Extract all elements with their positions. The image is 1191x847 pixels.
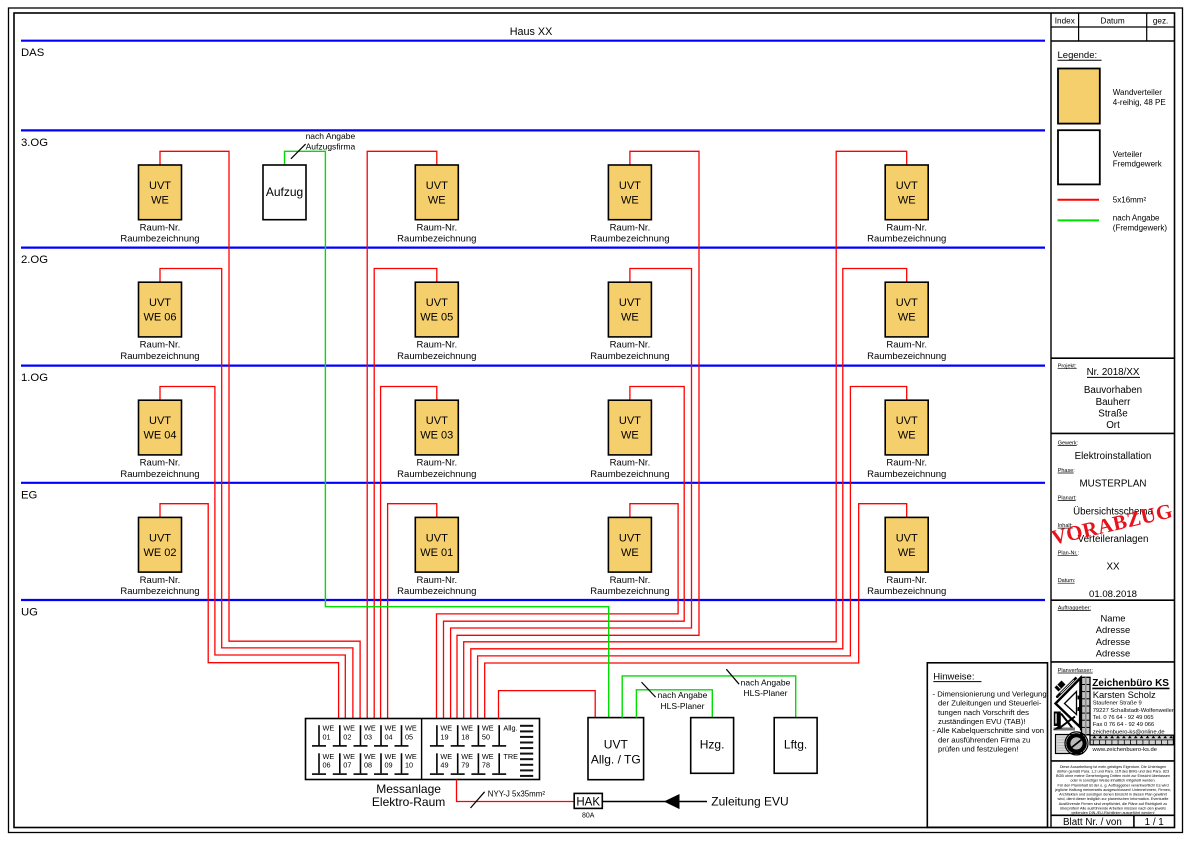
svg-text:UVT: UVT [149, 415, 171, 427]
svg-text:WE: WE [621, 312, 639, 324]
svg-text:Hinweise:: Hinweise: [933, 671, 974, 682]
svg-text:Messanlage: Messanlage [376, 782, 441, 796]
svg-text:Verteiler: Verteiler [1113, 150, 1143, 159]
svg-text:Tel. 0 76 64 - 92 49 065: Tel. 0 76 64 - 92 49 065 [1093, 715, 1154, 721]
svg-text:Adresse: Adresse [1096, 636, 1130, 647]
svg-text:Raum-Nr.: Raum-Nr. [886, 340, 927, 351]
svg-text:79: 79 [461, 761, 469, 770]
svg-text:09: 09 [385, 761, 393, 770]
svg-text:Raumbezeichnung: Raumbezeichnung [397, 351, 476, 362]
svg-text:05: 05 [405, 732, 413, 741]
svg-text:WE 02: WE 02 [143, 547, 176, 559]
svg-text:HLS-Planer: HLS-Planer [744, 688, 788, 698]
svg-text:WE: WE [343, 724, 355, 733]
svg-text:Elektroinstallation: Elektroinstallation [1075, 451, 1152, 462]
svg-text:WE: WE [440, 752, 452, 761]
svg-text:WE 04: WE 04 [143, 430, 176, 442]
svg-text:UVT: UVT [149, 532, 171, 544]
svg-text:Raumbezeichnung: Raumbezeichnung [867, 234, 946, 245]
svg-text:Name: Name [1100, 613, 1125, 624]
svg-text:Raumbezeichnung: Raumbezeichnung [397, 586, 476, 597]
svg-text:3.OG: 3.OG [21, 137, 48, 149]
svg-text:Raum-Nr.: Raum-Nr. [610, 340, 651, 351]
svg-text:Raumbezeichnung: Raumbezeichnung [120, 469, 199, 480]
svg-text:(Fremdgewerk): (Fremdgewerk) [1113, 223, 1168, 232]
svg-text:WE: WE [385, 752, 397, 761]
svg-text:Raum-Nr.: Raum-Nr. [886, 458, 927, 469]
svg-text:der Zuleitungen und Steuerlei-: der Zuleitungen und Steuerlei- [938, 699, 1042, 708]
svg-text:Raumbezeichnung: Raumbezeichnung [867, 469, 946, 480]
svg-text:Raum-Nr.: Raum-Nr. [416, 575, 457, 586]
svg-text:WE: WE [621, 547, 639, 559]
svg-text:MUSTERPLAN: MUSTERPLAN [1080, 479, 1147, 490]
svg-text:06: 06 [323, 761, 331, 770]
svg-text:Raumbezeichnung: Raumbezeichnung [397, 234, 476, 245]
svg-text:UVT: UVT [426, 415, 448, 427]
svg-text:WE: WE [151, 195, 169, 207]
svg-text:01.08.2018: 01.08.2018 [1089, 589, 1137, 600]
svg-text:UVT: UVT [896, 297, 918, 309]
svg-text:Nr. 2018/XX: Nr. 2018/XX [1087, 367, 1140, 378]
svg-text:Raumbezeichnung: Raumbezeichnung [120, 351, 199, 362]
svg-text:Aufzug: Aufzug [266, 185, 303, 199]
svg-text:Raum-Nr.: Raum-Nr. [886, 223, 927, 234]
svg-text:UVT: UVT [619, 415, 641, 427]
svg-text:WE: WE [440, 724, 452, 733]
svg-text:WE: WE [323, 724, 335, 733]
svg-text:HLS-Planer: HLS-Planer [661, 701, 705, 711]
svg-text:Raumbezeichnung: Raumbezeichnung [590, 234, 669, 245]
svg-text:04: 04 [385, 732, 393, 741]
svg-text:WE: WE [364, 724, 376, 733]
svg-text:HAK: HAK [576, 797, 600, 809]
svg-text:1 / 1: 1 / 1 [1145, 817, 1164, 828]
svg-text:WE 05: WE 05 [420, 312, 453, 324]
svg-text:XX: XX [1106, 561, 1120, 572]
svg-text:WE: WE [621, 430, 639, 442]
svg-text:WE 01: WE 01 [420, 547, 453, 559]
svg-text:WE: WE [461, 752, 473, 761]
svg-text:tungen nach Vorschrift des: tungen nach Vorschrift des [938, 708, 1029, 717]
svg-text:- Dimensionierung und Verlegun: - Dimensionierung und Verlegung [933, 690, 1047, 699]
svg-text:- Alle Kabelquerschnitte sind: - Alle Kabelquerschnitte sind von [933, 726, 1045, 735]
svg-text:Fremdgewerk: Fremdgewerk [1113, 159, 1163, 168]
svg-text:Haus XX: Haus XX [510, 26, 553, 38]
svg-text:NYY-J 5x35mm²: NYY-J 5x35mm² [488, 789, 546, 798]
svg-text:UVT: UVT [426, 180, 448, 192]
svg-text:nach Angabe: nach Angabe [306, 131, 356, 141]
svg-text:Bauherr: Bauherr [1096, 397, 1132, 408]
svg-text:Raumbezeichnung: Raumbezeichnung [867, 586, 946, 597]
svg-text:Ausführende Firmen sind verpfl: Ausführende Firmen sind verpflichtet, di… [1059, 802, 1167, 806]
svg-text:www.zeichenbuero-ks.de: www.zeichenbuero-ks.de [1092, 747, 1157, 753]
svg-text:Raum-Nr.: Raum-Nr. [140, 575, 181, 586]
svg-text:WE: WE [385, 724, 397, 733]
svg-text:UVT: UVT [604, 738, 629, 752]
svg-text:UVT: UVT [149, 297, 171, 309]
svg-text:49: 49 [440, 761, 448, 770]
svg-text:80A: 80A [582, 813, 595, 820]
svg-text:jegliche Haftung meinerseits a: jegliche Haftung meinerseits ausgeschlos… [1054, 788, 1171, 792]
svg-text:Raumbezeichnung: Raumbezeichnung [397, 469, 476, 480]
svg-text:geltenden DIN-/EU-Richtlinien: geltenden DIN-/EU-Richtlinien ausgeführt… [1071, 811, 1154, 815]
svg-text:79227 Schallstadt-Wolfenweiler: 79227 Schallstadt-Wolfenweiler [1093, 708, 1174, 714]
svg-text:Raum-Nr.: Raum-Nr. [416, 340, 457, 351]
svg-text:EG: EG [21, 489, 37, 501]
svg-text:UVT: UVT [149, 180, 171, 192]
svg-text:UG: UG [21, 607, 38, 619]
svg-text:UVT: UVT [426, 532, 448, 544]
svg-text:WE: WE [428, 195, 446, 207]
svg-text:Raum-Nr.: Raum-Nr. [610, 223, 651, 234]
svg-text:Elektro-Raum: Elektro-Raum [372, 795, 445, 809]
svg-text:Aufzugsfirma: Aufzugsfirma [306, 142, 356, 152]
svg-text:Raumbezeichnung: Raumbezeichnung [867, 351, 946, 362]
svg-text:WE: WE [482, 724, 494, 733]
svg-text:WE: WE [621, 195, 639, 207]
svg-text:03: 03 [364, 732, 372, 741]
svg-text:Raumbezeichnung: Raumbezeichnung [590, 351, 669, 362]
svg-text:gez.: gez. [1153, 17, 1168, 26]
svg-text:50: 50 [482, 732, 490, 741]
svg-text:1.OG: 1.OG [21, 372, 48, 384]
svg-text:WE: WE [343, 752, 355, 761]
svg-text:Straße: Straße [1098, 409, 1128, 420]
svg-text:Architekten und sonstigen dene: Architekten und sonstigen denen Einsicht… [1059, 793, 1168, 797]
svg-text:TRE: TRE [503, 752, 518, 761]
svg-text:Wandverteiler: Wandverteiler [1113, 88, 1162, 97]
svg-text:Fax 0 76 64 - 92 49 066: Fax 0 76 64 - 92 49 066 [1093, 722, 1155, 728]
svg-text:19: 19 [440, 732, 448, 741]
svg-text:Raum-Nr.: Raum-Nr. [610, 575, 651, 586]
svg-text:WE: WE [898, 195, 916, 207]
svg-text:Raumbezeichnung: Raumbezeichnung [120, 586, 199, 597]
svg-text:UVT: UVT [426, 297, 448, 309]
svg-text:Ort: Ort [1106, 420, 1120, 431]
svg-text:UVT: UVT [896, 415, 918, 427]
svg-text:WE: WE [482, 752, 494, 761]
svg-text:Adresse: Adresse [1096, 647, 1130, 658]
svg-text:Zeichenbüro KS: Zeichenbüro KS [1092, 678, 1169, 689]
svg-text:Zuleitung EVU: Zuleitung EVU [711, 794, 788, 808]
svg-text:zeichenbuero-ks@online.de: zeichenbuero-ks@online.de [1093, 729, 1165, 735]
svg-text:08: 08 [364, 761, 372, 770]
svg-text:WE 06: WE 06 [143, 312, 176, 324]
svg-text:Legende:: Legende: [1058, 50, 1098, 61]
svg-text:Lftg.: Lftg. [784, 737, 807, 751]
svg-text:UVT: UVT [619, 297, 641, 309]
svg-text:der ausführenden Firma zu: der ausführenden Firma zu [938, 735, 1030, 744]
svg-text:Raum-Nr.: Raum-Nr. [140, 223, 181, 234]
svg-text:UVT: UVT [896, 532, 918, 544]
svg-text:Raumbezeichnung: Raumbezeichnung [120, 234, 199, 245]
svg-text:BGB ohne meine Genehmigung Dri: BGB ohne meine Genehmigung Dritten nicht… [1056, 774, 1170, 778]
svg-text:Allg.: Allg. [503, 724, 517, 733]
svg-text:WE: WE [898, 430, 916, 442]
svg-text:02: 02 [343, 732, 351, 741]
svg-text:WE: WE [898, 312, 916, 324]
svg-text:4-reihig, 48 PE: 4-reihig, 48 PE [1113, 98, 1166, 107]
svg-text:WE: WE [461, 724, 473, 733]
svg-text:Staufener Straße 9: Staufener Straße 9 [1093, 701, 1142, 707]
svg-text:UVT: UVT [896, 180, 918, 192]
svg-text:2.OG: 2.OG [21, 254, 48, 266]
svg-text:Raumbezeichnung: Raumbezeichnung [590, 469, 669, 480]
svg-text:Adresse: Adresse [1096, 624, 1130, 635]
svg-text:zuständingen EVU (TAB)!: zuständingen EVU (TAB)! [938, 717, 1025, 726]
svg-text:WE: WE [405, 724, 417, 733]
svg-text:Allg. / TG: Allg. / TG [591, 753, 641, 767]
svg-text:Raum-Nr.: Raum-Nr. [416, 458, 457, 469]
svg-text:Raum-Nr.: Raum-Nr. [140, 458, 181, 469]
svg-text:Datum: Datum [1101, 17, 1125, 26]
svg-text:Karsten Scholz: Karsten Scholz [1093, 689, 1156, 700]
svg-text:prüfen und festzulegen!: prüfen und festzulegen! [938, 744, 1018, 753]
svg-text:UVT: UVT [619, 180, 641, 192]
svg-text:Raum-Nr.: Raum-Nr. [610, 458, 651, 469]
svg-text:Raum-Nr.: Raum-Nr. [886, 575, 927, 586]
svg-text:Raum-Nr.: Raum-Nr. [416, 223, 457, 234]
svg-text:18: 18 [461, 732, 469, 741]
svg-text:DAS: DAS [21, 47, 45, 59]
svg-text:Diese Ausarbeitung ist mein ge: Diese Ausarbeitung ist mein geistiges Ei… [1060, 765, 1166, 769]
svg-text:nach Angabe: nach Angabe [741, 677, 791, 687]
svg-text:Blatt Nr. / von: Blatt Nr. / von [1063, 817, 1122, 828]
svg-text:WE: WE [405, 752, 417, 761]
svg-text:dürfen gemäß Para. 1,2 und Par: dürfen gemäß Para. 1,2 und Para. 11ff de… [1057, 769, 1169, 773]
svg-text:nach Angabe: nach Angabe [658, 690, 708, 700]
svg-text:01: 01 [323, 732, 331, 741]
svg-text:oder in sonstiger Weise inhalt: oder in sonstiger Weise inhaltlich mitge… [1070, 779, 1155, 783]
svg-text:Hzg.: Hzg. [700, 737, 725, 751]
svg-text:Raumbezeichnung: Raumbezeichnung [590, 586, 669, 597]
svg-text:WE: WE [898, 547, 916, 559]
svg-text:78: 78 [482, 761, 490, 770]
svg-text:5x16mm²: 5x16mm² [1113, 196, 1147, 205]
svg-text:UVT: UVT [619, 532, 641, 544]
svg-text:wird, dient dieser lediglich z: wird, dient dieser lediglich zur planeri… [1058, 797, 1169, 801]
svg-text:Für den Planinhalt ist der o.: Für den Planinhalt ist der o. g. Auftrag… [1057, 783, 1168, 787]
svg-text:WE: WE [323, 752, 335, 761]
svg-text:WE 03: WE 03 [420, 430, 453, 442]
svg-text:Index: Index [1055, 17, 1075, 26]
svg-text:10: 10 [405, 761, 413, 770]
svg-text:nach Angabe: nach Angabe [1113, 214, 1160, 223]
svg-text:07: 07 [343, 761, 351, 770]
svg-text:WE: WE [364, 752, 376, 761]
svg-text:überprüfen! Alle ausführende A: überprüfen! Alle ausführende Arbeiten mü… [1060, 806, 1166, 810]
svg-text:Raum-Nr.: Raum-Nr. [140, 340, 181, 351]
svg-text:Bauvorhaben: Bauvorhaben [1084, 385, 1142, 396]
